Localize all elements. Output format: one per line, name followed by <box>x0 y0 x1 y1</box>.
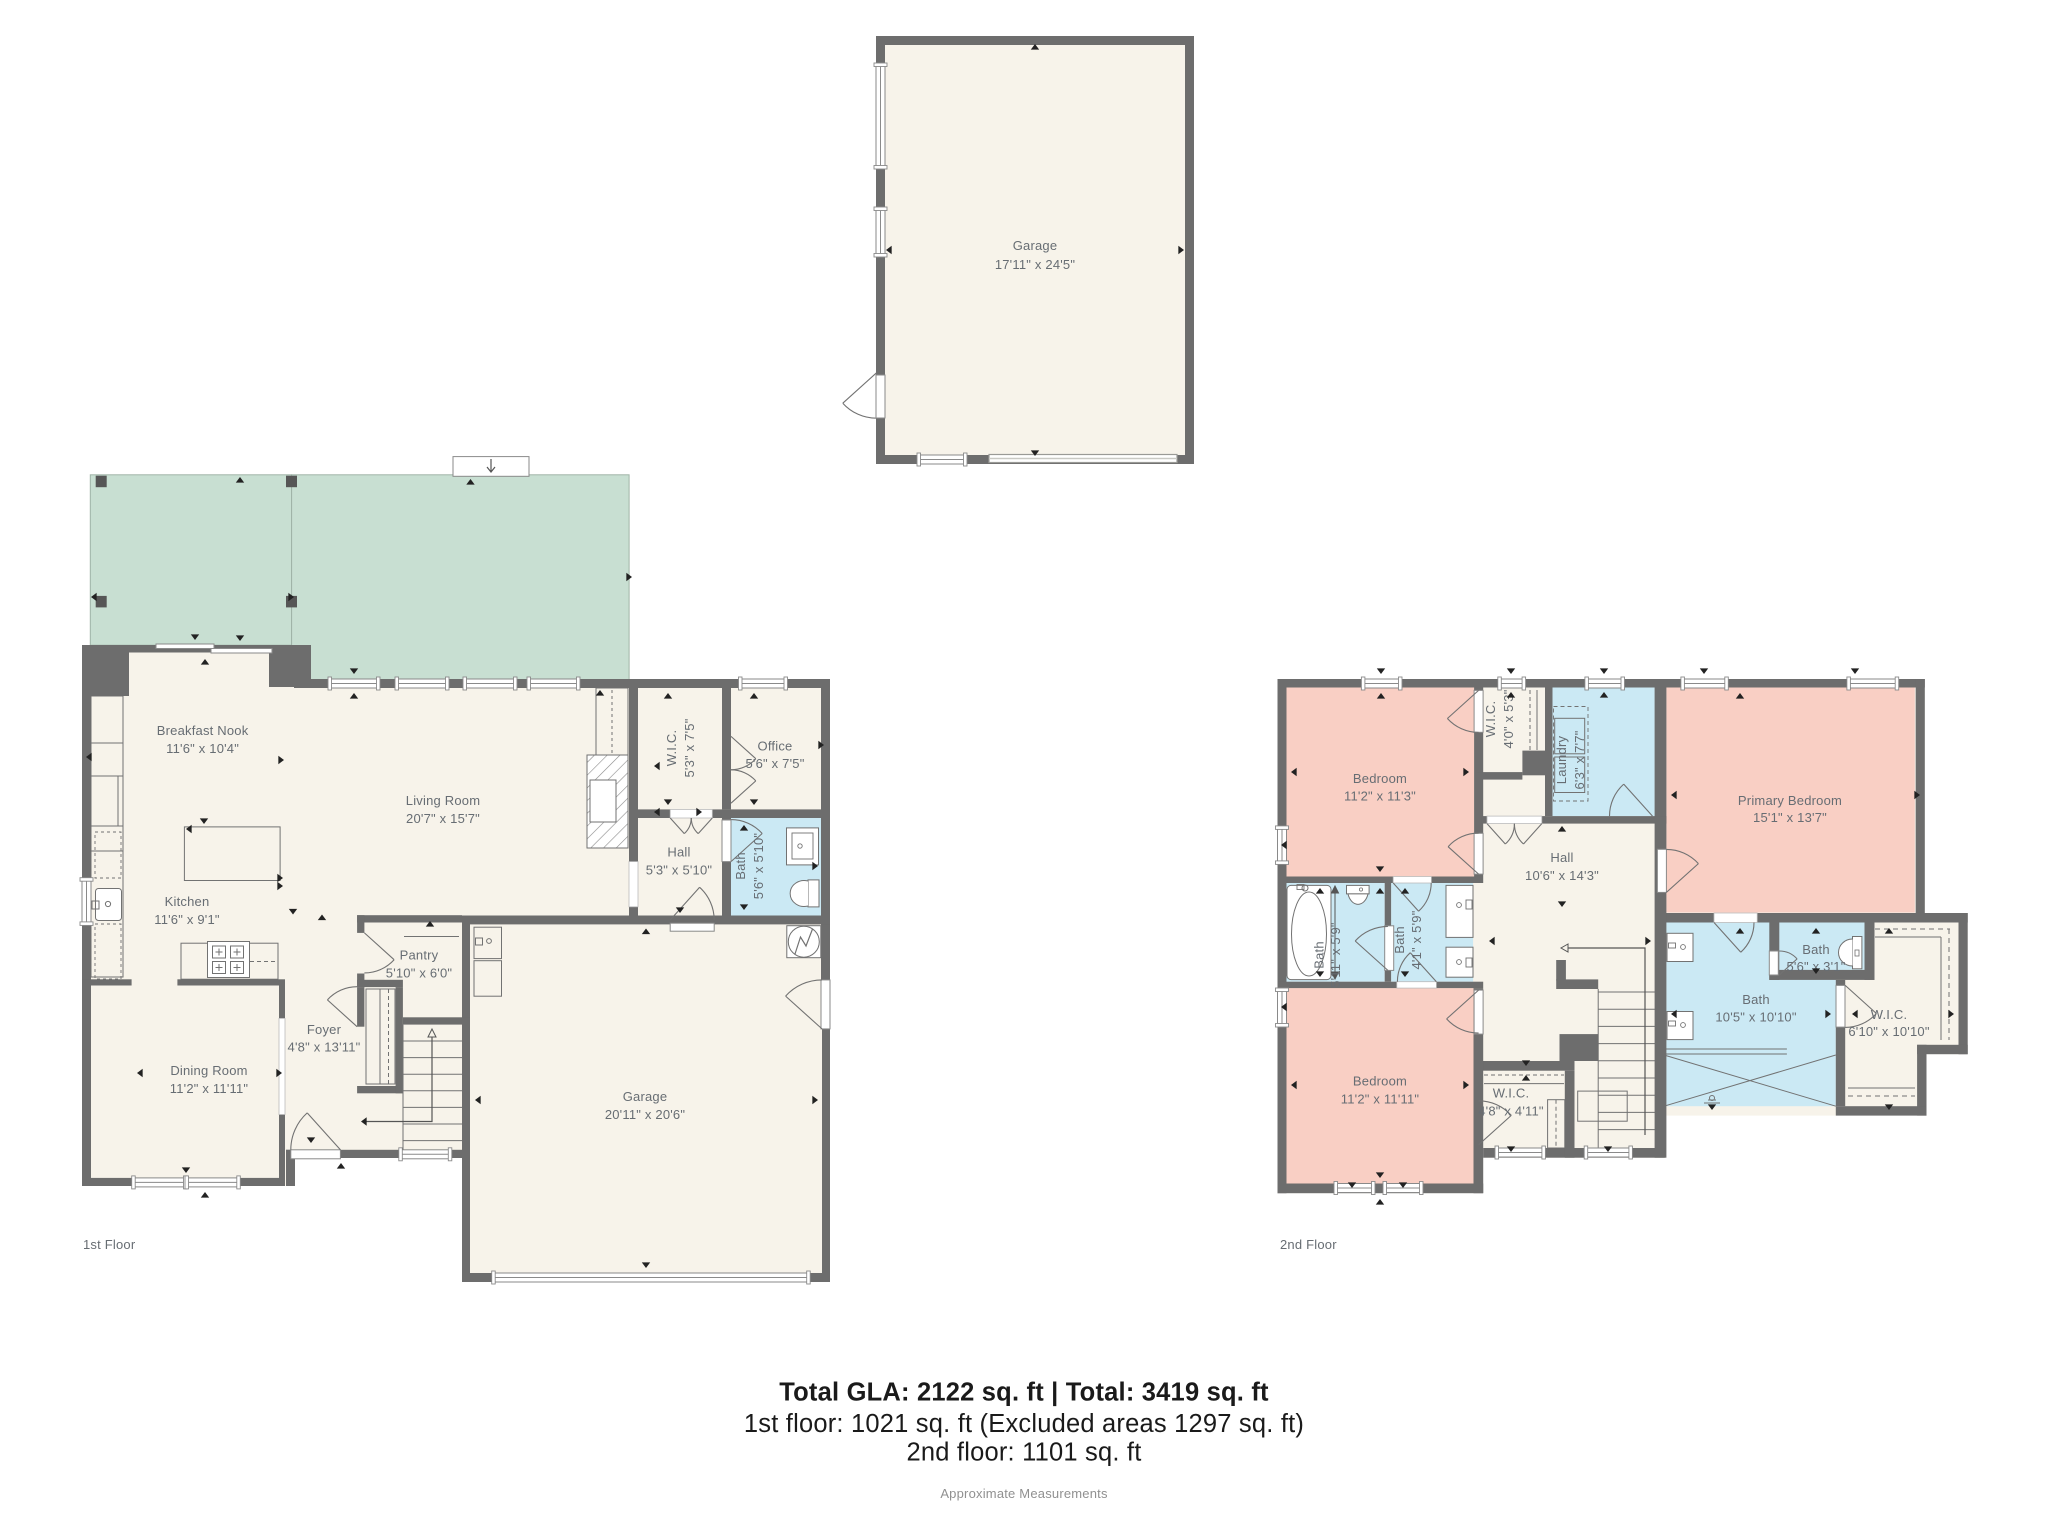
svg-text:Approximate Measurements: Approximate Measurements <box>940 1486 1108 1501</box>
svg-text:10'6" x 14'3": 10'6" x 14'3" <box>1525 868 1599 883</box>
svg-text:17'11" x 24'5": 17'11" x 24'5" <box>995 257 1076 272</box>
svg-text:11'6" x 9'1": 11'6" x 9'1" <box>154 912 220 927</box>
svg-text:4'0" x 5'3": 4'0" x 5'3" <box>1501 689 1516 748</box>
svg-text:Dining Room: Dining Room <box>170 1063 247 1078</box>
svg-text:W.I.C.: W.I.C. <box>1493 1086 1530 1101</box>
svg-text:1st floor: 1021 sq. ft (Exclud: 1st floor: 1021 sq. ft (Excluded areas 1… <box>744 1410 1304 1438</box>
svg-text:Kitchen: Kitchen <box>165 894 210 909</box>
svg-text:2nd Floor: 2nd Floor <box>1280 1237 1337 1252</box>
svg-text:4'8" x 4'11": 4'8" x 4'11" <box>1478 1104 1544 1119</box>
svg-text:Primary Bedroom: Primary Bedroom <box>1738 793 1842 808</box>
svg-text:6'3" x 7'7": 6'3" x 7'7" <box>1572 730 1587 789</box>
svg-text:Hall: Hall <box>667 845 690 860</box>
svg-text:11'2" x 11'11": 11'2" x 11'11" <box>170 1081 249 1096</box>
svg-text:11'2" x 11'11": 11'2" x 11'11" <box>1341 1092 1420 1107</box>
svg-text:Bath: Bath <box>1802 942 1830 957</box>
svg-text:2nd floor: 1101 sq. ft: 2nd floor: 1101 sq. ft <box>907 1439 1142 1467</box>
svg-text:Foyer: Foyer <box>307 1022 342 1037</box>
svg-text:20'7" x 15'7": 20'7" x 15'7" <box>406 811 480 826</box>
svg-text:Bath: Bath <box>1392 926 1407 954</box>
svg-text:1st Floor: 1st Floor <box>83 1237 136 1252</box>
svg-text:5'3" x 7'5": 5'3" x 7'5" <box>682 718 697 777</box>
svg-text:Laundry: Laundry <box>1554 736 1569 785</box>
svg-text:20'11" x 20'6": 20'11" x 20'6" <box>605 1107 686 1122</box>
svg-text:Pantry: Pantry <box>400 948 439 963</box>
svg-text:W.I.C.: W.I.C. <box>1483 701 1498 738</box>
svg-text:Garage: Garage <box>623 1089 668 1104</box>
svg-text:Bedroom: Bedroom <box>1353 1074 1407 1089</box>
svg-text:5'10" x 6'0": 5'10" x 6'0" <box>386 966 453 981</box>
svg-text:5'11" x 5'9": 5'11" x 5'9" <box>1328 922 1343 988</box>
svg-text:5'6" x 5'10": 5'6" x 5'10" <box>751 833 766 900</box>
svg-text:4'8" x 13'11": 4'8" x 13'11" <box>288 1040 361 1055</box>
svg-text:5'3" x 5'10": 5'3" x 5'10" <box>646 863 713 878</box>
svg-text:Breakfast Nook: Breakfast Nook <box>157 723 249 738</box>
svg-text:11'6" x 10'4": 11'6" x 10'4" <box>166 741 239 756</box>
svg-text:Bath: Bath <box>1742 992 1770 1007</box>
svg-text:15'1" x 13'7": 15'1" x 13'7" <box>1753 810 1827 825</box>
svg-text:5'6" x 7'5": 5'6" x 7'5" <box>745 756 804 771</box>
svg-text:11'2" x 11'3": 11'2" x 11'3" <box>1344 789 1416 804</box>
svg-text:Bath: Bath <box>733 852 748 880</box>
svg-text:Total GLA: 2122 sq. ft | Total: Total GLA: 2122 sq. ft | Total: 3419 sq.… <box>779 1379 1269 1407</box>
svg-text:4'1" x 5'9": 4'1" x 5'9" <box>1409 910 1424 969</box>
svg-text:Living Room: Living Room <box>406 793 480 808</box>
svg-text:W.I.C.: W.I.C. <box>664 730 679 767</box>
svg-text:Office: Office <box>758 739 793 754</box>
svg-text:Bath: Bath <box>1312 941 1327 969</box>
svg-text:W.I.C.: W.I.C. <box>1871 1007 1908 1022</box>
svg-text:Bedroom: Bedroom <box>1353 771 1407 786</box>
svg-text:6'10" x 10'10": 6'10" x 10'10" <box>1848 1024 1930 1039</box>
svg-text:Hall: Hall <box>1550 850 1573 865</box>
svg-text:10'5" x 10'10": 10'5" x 10'10" <box>1715 1010 1797 1025</box>
svg-text:Garage: Garage <box>1013 238 1058 253</box>
